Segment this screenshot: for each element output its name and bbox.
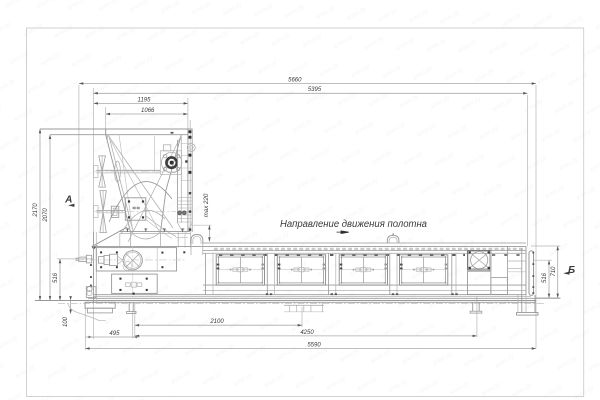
svg-text:max 220: max 220 bbox=[203, 193, 210, 217]
svg-text:5660: 5660 bbox=[288, 77, 302, 83]
svg-text:5590: 5590 bbox=[307, 343, 321, 349]
svg-text:5395: 5395 bbox=[308, 87, 322, 93]
svg-text:2070: 2070 bbox=[43, 208, 49, 223]
svg-text:495: 495 bbox=[109, 331, 120, 337]
svg-text:100: 100 bbox=[63, 316, 69, 327]
svg-text:1066: 1066 bbox=[141, 108, 155, 114]
svg-text:710: 710 bbox=[551, 266, 557, 277]
svg-text:2100: 2100 bbox=[209, 319, 224, 325]
svg-text:516: 516 bbox=[542, 272, 548, 283]
svg-text:А: А bbox=[64, 195, 72, 206]
svg-text:4250: 4250 bbox=[300, 330, 314, 336]
svg-text:2170: 2170 bbox=[33, 203, 39, 218]
svg-text:Направление движения полотна: Направление движения полотна bbox=[280, 219, 428, 230]
svg-text:1195: 1195 bbox=[138, 98, 152, 104]
svg-text:516: 516 bbox=[53, 272, 59, 283]
